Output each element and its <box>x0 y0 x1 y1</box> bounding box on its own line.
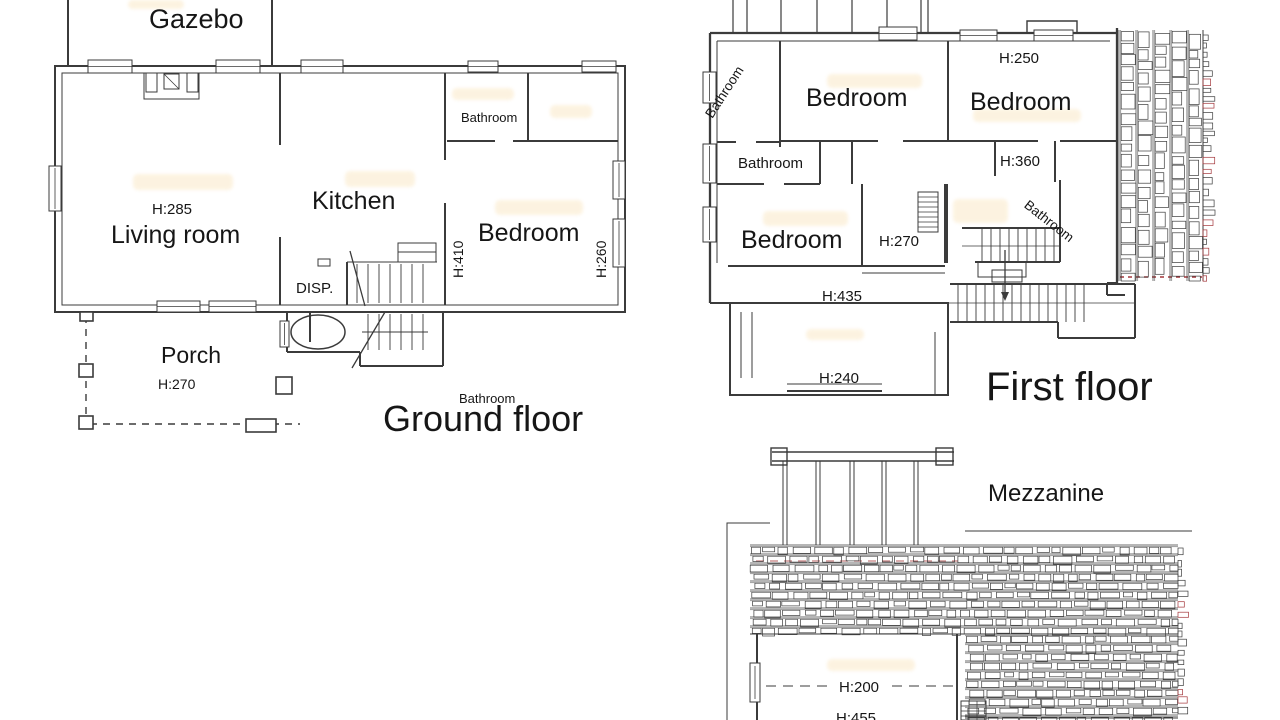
height-label-h200: H:200 <box>839 680 879 695</box>
height-label-h260: H:260 <box>594 241 608 278</box>
room-label-kitchen: Kitchen <box>312 189 395 214</box>
height-label-h270-first: H:270 <box>879 234 919 249</box>
height-label-living-room: H:285 <box>152 202 192 217</box>
room-label-gazebo: Gazebo <box>149 6 244 33</box>
first-floor-walls <box>710 0 1202 395</box>
mezzanine-roof-tiles-lower <box>965 634 1178 720</box>
height-label-h435: H:435 <box>822 289 862 304</box>
height-label-h360: H:360 <box>1000 154 1040 169</box>
first-floor-roof-tiles <box>1119 30 1203 281</box>
room-label-bedroom-right: Bedroom <box>970 90 1071 115</box>
height-label-h250: H:250 <box>999 51 1039 66</box>
room-label-disp: DISP. <box>296 281 333 296</box>
floor-title-first: First floor <box>986 367 1153 407</box>
height-label-h240: H:240 <box>819 371 859 386</box>
height-label-porch: H:270 <box>158 377 195 391</box>
floor-title-ground: Ground floor <box>383 401 583 437</box>
room-label-bedroom-gf: Bedroom <box>478 221 579 246</box>
floor-plan-sheet: Gazebo H:285 Living room Kitchen Bathroo… <box>0 0 1280 720</box>
room-label-porch: Porch <box>161 344 221 367</box>
room-label-bathroom-top: Bathroom <box>461 111 517 124</box>
floor-title-mezzanine: Mezzanine <box>988 482 1104 506</box>
mezzanine-roof-tiles-upper <box>750 545 1178 636</box>
room-label-living-room: Living room <box>111 223 240 248</box>
room-label-bathroom-west: Bathroom <box>738 156 803 171</box>
height-label-h410: H:410 <box>451 241 465 278</box>
room-label-bedroom-center: Bedroom <box>806 86 907 111</box>
room-label-bedroom-left: Bedroom <box>741 228 842 253</box>
height-label-clipped: H:455 <box>836 711 876 720</box>
